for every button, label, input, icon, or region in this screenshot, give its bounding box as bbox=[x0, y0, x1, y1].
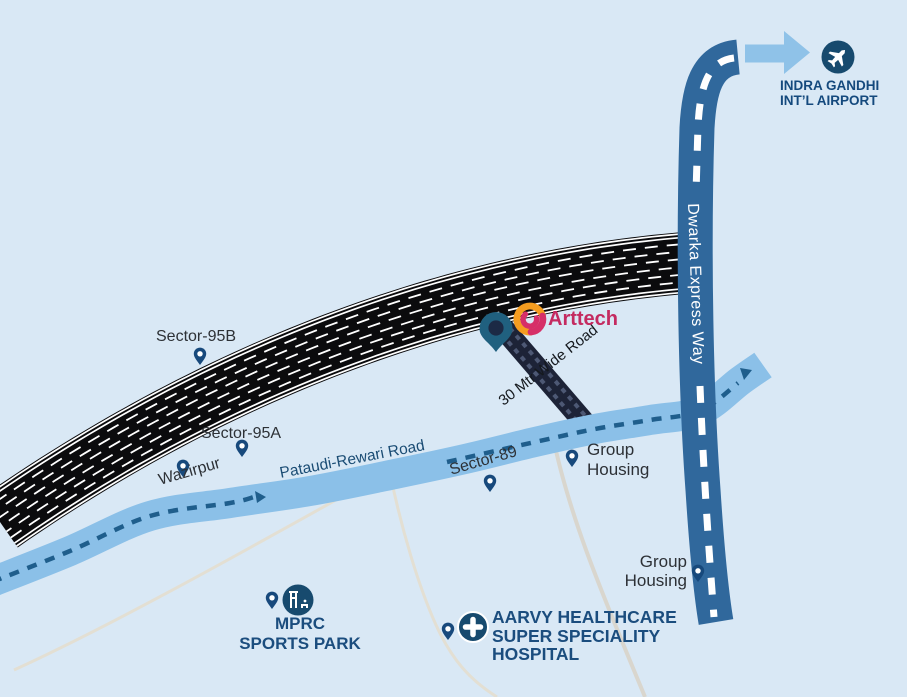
mprc-line2: SPORTS PARK bbox=[239, 634, 361, 653]
group-housing-2-line1: Group bbox=[640, 552, 687, 571]
group-housing-2-line2: Housing bbox=[625, 571, 687, 590]
sports-park-badge bbox=[283, 585, 314, 616]
label-sector-95b: Sector-95B bbox=[156, 327, 236, 346]
label-aarvy-hospital: AARVY HEALTHCARESUPER SPECIALITYHOSPITAL bbox=[492, 608, 677, 664]
park-icon-dot bbox=[304, 600, 307, 603]
map-background bbox=[0, 0, 907, 697]
group-housing-1-line1: Group bbox=[587, 440, 634, 459]
group-housing-1-line2: Housing bbox=[587, 460, 649, 479]
label-sector-95a: Sector-95A bbox=[201, 424, 281, 443]
label-mprc-sports-park: MPRCSPORTS PARK bbox=[220, 614, 380, 653]
airport-line2: INT’L AIRPORT bbox=[780, 93, 878, 108]
airport-line1: INDRA GANDHI bbox=[780, 78, 879, 93]
hospital-badge bbox=[458, 612, 488, 642]
label-arttech-brand: Arttech bbox=[548, 307, 618, 331]
park-badge-circle bbox=[283, 585, 314, 616]
label-group-housing-1: GroupHousing bbox=[587, 440, 649, 480]
label-group-housing-2: GroupHousing bbox=[607, 552, 687, 590]
label-indra-gandhi-airport: INDRA GANDHIINT’L AIRPORT bbox=[780, 79, 879, 108]
map-canvas bbox=[0, 0, 907, 697]
location-map: Sector-95B Sector-95A Wazirpur Sector-89… bbox=[0, 0, 907, 697]
mprc-line1: MPRC bbox=[275, 614, 325, 633]
aarvy-line1: AARVY HEALTHCARE bbox=[492, 607, 677, 627]
aarvy-line2: SUPER SPECIALITY bbox=[492, 626, 660, 646]
aarvy-line3: HOSPITAL bbox=[492, 644, 579, 664]
